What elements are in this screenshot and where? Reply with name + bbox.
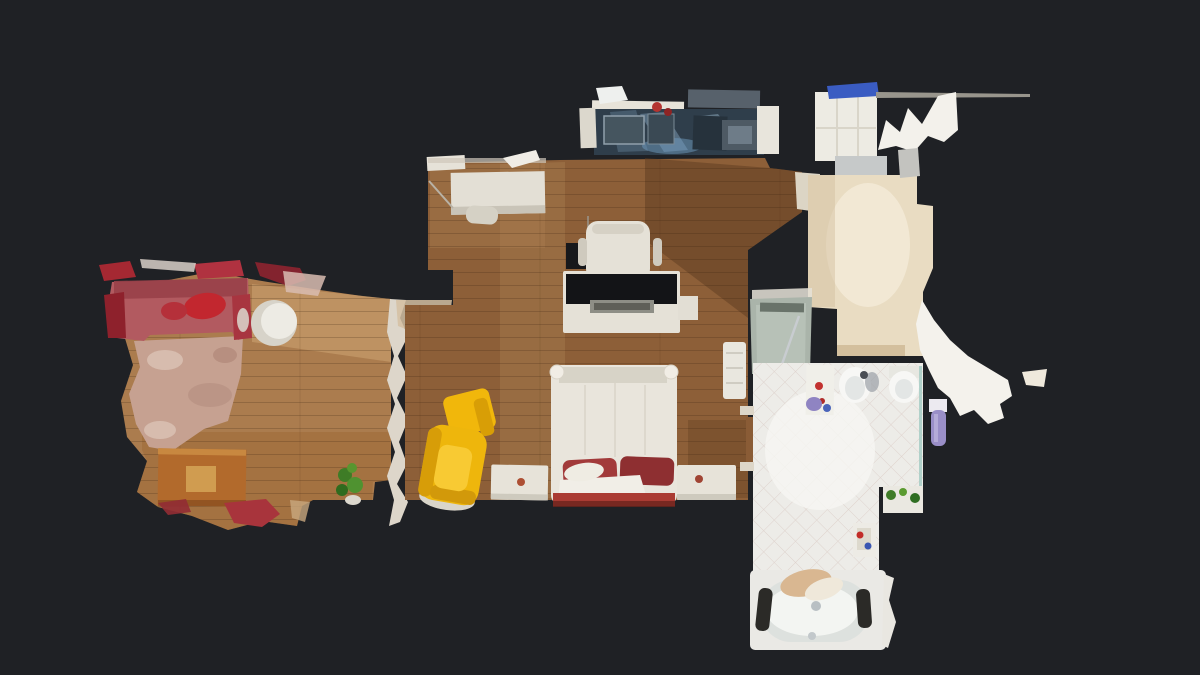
potted-plant-leaf-2	[347, 477, 363, 493]
sink-purple-bottle	[806, 397, 822, 411]
nightstand-right-shadow	[677, 494, 736, 500]
center-desk-side	[678, 296, 698, 320]
shower-top-bar	[760, 303, 804, 313]
toilet-inner	[845, 376, 865, 400]
bathroom-door-jamb-bottom	[740, 462, 754, 471]
white-scan-blob-small	[1022, 369, 1047, 387]
floorplan-shapes	[99, 82, 1047, 650]
entry-floor-highlight	[826, 183, 910, 307]
office-desk-shadow	[451, 205, 545, 215]
kitchen-sink-2	[648, 114, 674, 144]
bed-foot-shadow	[559, 367, 667, 383]
closet-mirror	[835, 156, 887, 175]
desk-chair-back	[592, 224, 644, 234]
radiator-line-1	[726, 352, 743, 354]
rug-mottle-3	[144, 421, 176, 439]
entry-floor-bottom-shade	[837, 345, 905, 356]
bathtub-handle-right	[856, 589, 873, 629]
bed-headboard-shadow	[553, 501, 675, 507]
closet-seam-v1	[836, 94, 838, 158]
white-fragment-top	[140, 259, 196, 272]
counter-red-item-2	[664, 108, 672, 116]
cabinet-red-item	[857, 532, 864, 539]
shelf-plant-2	[899, 488, 907, 496]
nightstand-left-shadow	[491, 494, 548, 501]
radiator-line-2	[726, 367, 743, 369]
sofa-back-shade	[114, 278, 247, 299]
counter-stove-inner	[728, 126, 752, 144]
bathroom-door-jamb-top	[740, 406, 754, 415]
nightstand-right-object	[695, 475, 703, 483]
desk-chair-arm-left	[578, 238, 587, 266]
bathtub-drain	[811, 601, 821, 611]
rug-mottle-1	[147, 350, 183, 370]
coffee-table-top	[186, 466, 216, 492]
sofa-arm-highlight	[237, 308, 249, 332]
entry-closet	[815, 92, 877, 161]
floorplan-stage	[0, 0, 1200, 675]
counter-red-item-1	[652, 102, 662, 112]
kitchen-gray-objects	[688, 89, 760, 108]
closet-blue-top	[827, 82, 879, 99]
cabinet-blue-item	[865, 543, 872, 550]
potted-plant-leaf-3	[336, 484, 348, 496]
bed-corner-right	[664, 365, 678, 379]
office-chair	[465, 205, 498, 225]
radiator	[723, 342, 746, 399]
tub-right-ragged-edge	[882, 574, 896, 648]
shelf-plant-3	[910, 493, 920, 503]
kitchen-sink	[604, 116, 644, 144]
shower-screen-edge	[919, 366, 922, 486]
bidet-inner	[895, 379, 913, 399]
sink-blue-bottle	[823, 404, 831, 412]
silver-fragment	[898, 148, 920, 178]
toilet-dark-object	[860, 371, 868, 379]
round-side-table-top	[261, 303, 297, 339]
sofa-fragment-1	[99, 261, 136, 281]
entry-floor-left-shade	[808, 175, 835, 307]
desk-keyboard-keys	[594, 303, 650, 310]
counter-right-cabinet	[757, 106, 779, 154]
potted-plant-leaf-4	[347, 463, 357, 473]
floorplan-canvas[interactable]	[0, 0, 1200, 675]
closet-seam-v2	[857, 94, 859, 158]
shelf-plant-1	[886, 490, 896, 500]
sofa-cushion-2	[161, 302, 187, 320]
counter-left-cap	[579, 108, 596, 149]
bed-corner-left	[550, 365, 564, 379]
radiator-line-3	[726, 382, 743, 384]
sink-red-soap	[815, 382, 823, 390]
sofa-fragment-2	[194, 260, 244, 279]
desk-chair-arm-right	[653, 238, 662, 266]
towel-purple-stripe	[934, 414, 938, 442]
white-scan-steps	[878, 92, 958, 152]
sofa-arm-left	[104, 292, 126, 338]
closet-seam-h	[816, 127, 876, 129]
bathtub-drain-2	[808, 632, 816, 640]
nightstand-left-object	[517, 478, 525, 486]
shower-glass-inner	[756, 303, 806, 369]
potted-plant-pot	[345, 495, 361, 505]
rug-mottle-4	[213, 347, 237, 363]
center-desk-top	[566, 274, 677, 304]
towel-purple	[931, 410, 946, 446]
rug-mottle-2	[188, 383, 232, 407]
